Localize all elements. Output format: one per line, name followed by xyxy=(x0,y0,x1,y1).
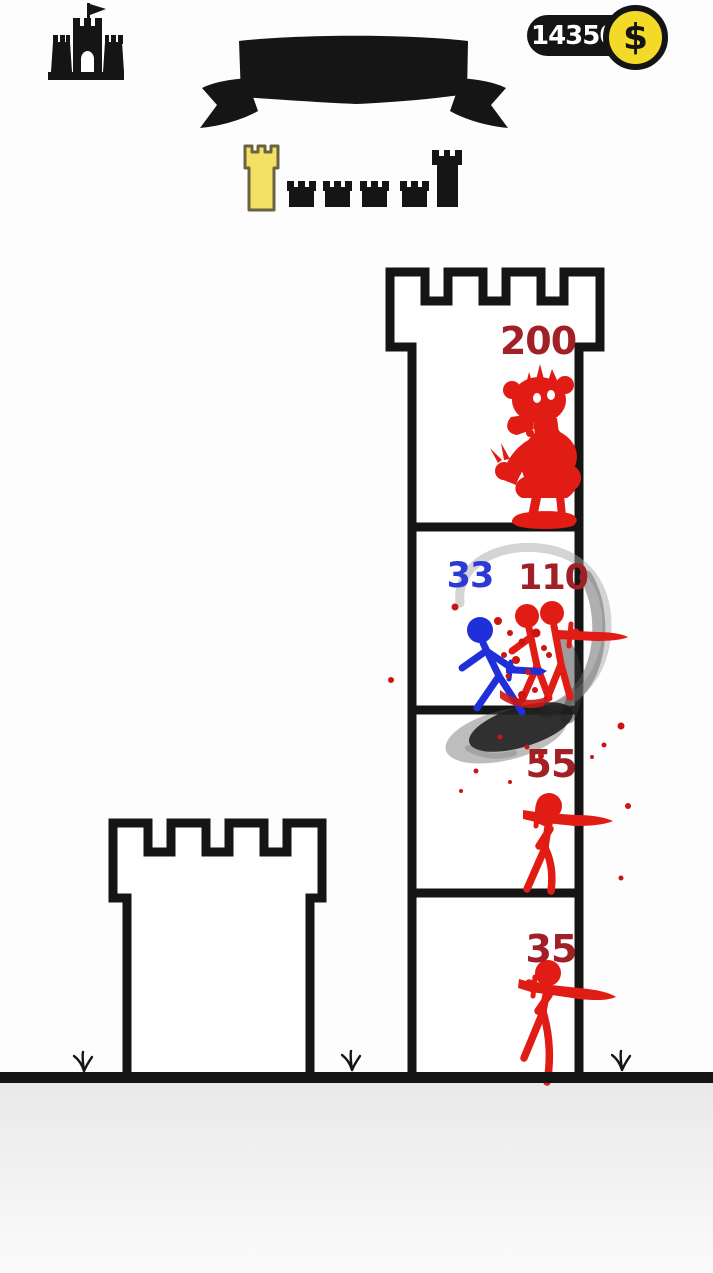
progress-tower-upcoming xyxy=(323,181,352,207)
dollar-symbol: $ xyxy=(623,17,648,58)
ground-line xyxy=(0,1072,713,1083)
progress-tower-upcoming xyxy=(360,181,389,207)
enemy-floor-35-hitarea[interactable] xyxy=(408,897,583,1072)
banner-body xyxy=(239,36,468,104)
progress-tower-upcoming xyxy=(287,181,316,207)
progress-tower-upcoming xyxy=(400,181,429,207)
progress-tower-final xyxy=(432,150,462,207)
game-screen: 14350 $ 200 33 110 55 35 xyxy=(0,0,713,1273)
battle-scene xyxy=(0,0,713,1273)
grass-tuft xyxy=(74,1052,92,1071)
banner-ribbon xyxy=(200,36,508,128)
enemy-floor-55-hitarea[interactable] xyxy=(408,714,583,889)
grass-tuft xyxy=(612,1051,630,1070)
enemy-floor-battle-hitarea[interactable] xyxy=(408,531,583,706)
enemy-floor-boss-hitarea[interactable] xyxy=(408,347,583,523)
castle-home-button[interactable] xyxy=(44,0,128,86)
castle-icon xyxy=(44,0,128,86)
dollar-coin-icon: $ xyxy=(603,5,668,70)
coin-amount: 14350 xyxy=(531,21,609,51)
level-progress xyxy=(245,146,462,210)
player-tower xyxy=(113,823,322,1076)
grass-tuft xyxy=(342,1051,360,1070)
below-ground xyxy=(0,1083,713,1273)
coin-counter: 14350 $ xyxy=(527,15,651,56)
progress-tower-current xyxy=(245,146,278,210)
